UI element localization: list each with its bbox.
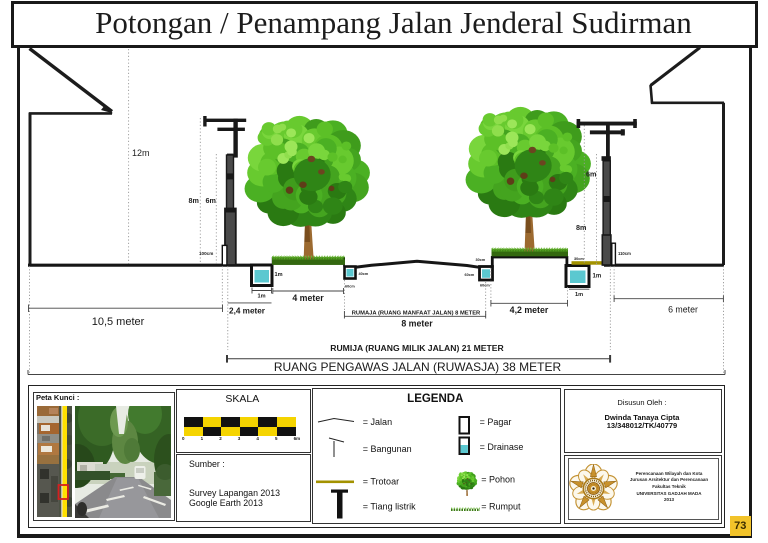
svg-text:60cm: 60cm xyxy=(480,284,490,288)
svg-text:40cm: 40cm xyxy=(359,272,369,276)
svg-text:4 meter: 4 meter xyxy=(292,293,324,303)
svg-text:8m: 8m xyxy=(189,196,199,205)
svg-text:1m: 1m xyxy=(575,292,583,298)
svg-text:= Trotoar: = Trotoar xyxy=(363,477,399,487)
svg-text:8m: 8m xyxy=(576,223,586,232)
svg-text:= Rumput: = Rumput xyxy=(481,502,521,512)
svg-text:30cm: 30cm xyxy=(574,257,584,261)
svg-text:110cm: 110cm xyxy=(618,251,631,256)
svg-text:= Jalan: = Jalan xyxy=(363,417,392,427)
svg-text:6m: 6m xyxy=(206,196,216,205)
svg-text:RUMAJA (RUANG MANFAAT JALAN) 8: RUMAJA (RUANG MANFAAT JALAN) 8 METER xyxy=(352,311,481,317)
svg-text:= Pagar: = Pagar xyxy=(479,417,511,427)
svg-text:10,5 meter: 10,5 meter xyxy=(92,316,145,328)
svg-text:= Pohon: = Pohon xyxy=(481,475,515,485)
svg-text:60cm: 60cm xyxy=(465,273,475,277)
svg-text:60cm: 60cm xyxy=(345,285,355,289)
svg-text:1m: 1m xyxy=(593,274,602,280)
svg-text:RUMIJA (RUANG MILIK JALAN) 21: RUMIJA (RUANG MILIK JALAN) 21 METER xyxy=(330,343,504,353)
svg-text:= Bangunan: = Bangunan xyxy=(363,444,412,454)
svg-text:6 meter: 6 meter xyxy=(668,305,698,315)
svg-text:RUANG PENGAWAS JALAN (RUWASJA): RUANG PENGAWAS JALAN (RUWASJA) 38 METER xyxy=(274,360,562,374)
svg-text:= Drainase: = Drainase xyxy=(479,442,523,452)
svg-text:1m: 1m xyxy=(275,272,283,278)
svg-text:30cm: 30cm xyxy=(476,258,486,262)
svg-text:2,4 meter: 2,4 meter xyxy=(229,307,266,316)
svg-text:4,2 meter: 4,2 meter xyxy=(510,305,549,315)
svg-text:8 meter: 8 meter xyxy=(401,319,433,329)
svg-text:1m: 1m xyxy=(257,294,265,300)
svg-text:12m: 12m xyxy=(132,148,150,158)
svg-text:6m: 6m xyxy=(586,170,596,179)
svg-text:= Tiang listrik: = Tiang listrik xyxy=(363,502,416,512)
svg-text:100cm: 100cm xyxy=(199,251,213,256)
